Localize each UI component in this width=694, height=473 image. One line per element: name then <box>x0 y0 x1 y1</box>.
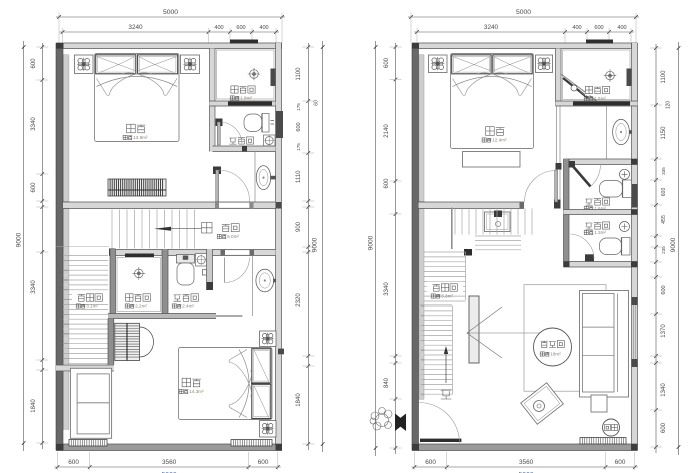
svg-text:600: 600 <box>68 459 79 466</box>
svg-text:3340: 3340 <box>384 282 390 296</box>
svg-text:3.1m²: 3.1m² <box>86 304 98 309</box>
svg-text:400: 400 <box>259 25 268 31</box>
svg-text:600: 600 <box>615 459 626 466</box>
svg-text:3340: 3340 <box>31 117 37 131</box>
svg-text:3240: 3240 <box>128 24 143 31</box>
svg-text:840: 840 <box>384 377 390 388</box>
svg-text:5.0m²: 5.0m² <box>227 234 239 239</box>
svg-text:2140: 2140 <box>384 124 390 138</box>
svg-text:400: 400 <box>572 25 581 31</box>
svg-text:600: 600 <box>31 182 37 193</box>
svg-text:9000: 9000 <box>312 237 319 252</box>
svg-text:600: 600 <box>661 422 667 433</box>
svg-text:600: 600 <box>661 285 667 294</box>
svg-text:2320: 2320 <box>296 293 302 307</box>
svg-text:2.4m²: 2.4m² <box>182 304 194 309</box>
svg-text:9000: 9000 <box>368 235 375 250</box>
svg-text:1100: 1100 <box>661 70 667 84</box>
svg-text:600: 600 <box>425 459 436 466</box>
svg-text:455: 455 <box>661 215 667 224</box>
svg-text:175: 175 <box>296 143 301 151</box>
svg-text:1.5m²: 1.5m² <box>594 96 606 101</box>
svg-text:3560: 3560 <box>519 459 534 466</box>
svg-text:1370: 1370 <box>661 324 667 338</box>
svg-text:600: 600 <box>661 188 667 197</box>
svg-text:1100: 1100 <box>296 67 302 81</box>
svg-text:600: 600 <box>594 25 603 31</box>
svg-text:9000: 9000 <box>16 232 23 247</box>
svg-text:335: 335 <box>661 167 666 175</box>
svg-text:5000: 5000 <box>163 9 178 16</box>
svg-text:235: 235 <box>661 246 666 254</box>
svg-text:18m²: 18m² <box>550 352 561 357</box>
svg-text:1840: 1840 <box>31 399 37 413</box>
svg-text:175: 175 <box>296 103 301 111</box>
svg-text:900: 900 <box>296 221 302 232</box>
svg-text:9000: 9000 <box>670 237 677 252</box>
svg-text:600: 600 <box>31 58 37 69</box>
svg-text:14.3m²: 14.3m² <box>189 389 204 394</box>
svg-text:5000: 5000 <box>516 9 531 16</box>
svg-text:600: 600 <box>258 459 269 466</box>
svg-text:1110: 1110 <box>296 170 302 183</box>
svg-text:13.9m²: 13.9m² <box>133 135 148 140</box>
svg-text:6.3m²: 6.3m² <box>441 294 453 299</box>
svg-text:600: 600 <box>384 57 390 68</box>
svg-text:120: 120 <box>666 101 672 110</box>
svg-text:1.3m²: 1.3m² <box>594 230 606 235</box>
svg-text:1840: 1840 <box>296 393 302 407</box>
svg-text:1.8m²: 1.8m² <box>240 96 252 101</box>
svg-text:400: 400 <box>214 25 223 31</box>
svg-text:60: 60 <box>314 100 320 106</box>
svg-text:3240: 3240 <box>484 24 499 31</box>
svg-text:12.4m²: 12.4m² <box>492 138 507 143</box>
svg-text:1340: 1340 <box>661 383 667 397</box>
svg-text:600: 600 <box>384 178 390 189</box>
svg-text:3340: 3340 <box>31 280 37 294</box>
svg-text:400: 400 <box>617 25 626 31</box>
svg-text:600: 600 <box>236 25 245 31</box>
svg-text:3560: 3560 <box>162 459 177 466</box>
svg-text:2.2m²: 2.2m² <box>135 304 147 309</box>
svg-text:1150: 1150 <box>661 126 667 140</box>
svg-text:600: 600 <box>296 122 302 131</box>
